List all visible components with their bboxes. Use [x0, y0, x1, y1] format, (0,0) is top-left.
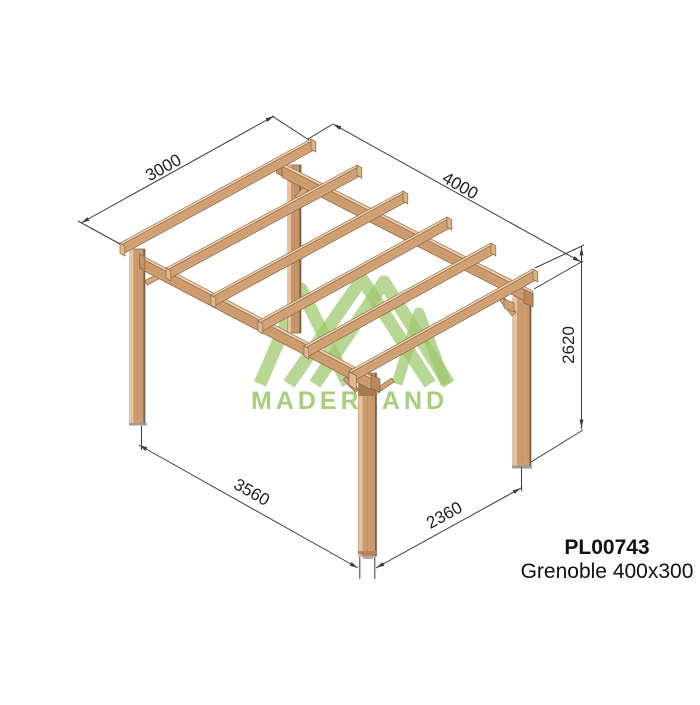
- svg-text:2620: 2620: [559, 326, 578, 364]
- svg-text:MADERLAND: MADERLAND: [251, 387, 448, 415]
- svg-text:Grenoble 400x300: Grenoble 400x300: [521, 560, 694, 583]
- svg-text:PL00743: PL00743: [564, 536, 649, 559]
- svg-text:4000: 4000: [439, 168, 481, 203]
- svg-text:2360: 2360: [423, 498, 465, 533]
- svg-text:3000: 3000: [142, 150, 184, 185]
- svg-text:3560: 3560: [231, 475, 273, 510]
